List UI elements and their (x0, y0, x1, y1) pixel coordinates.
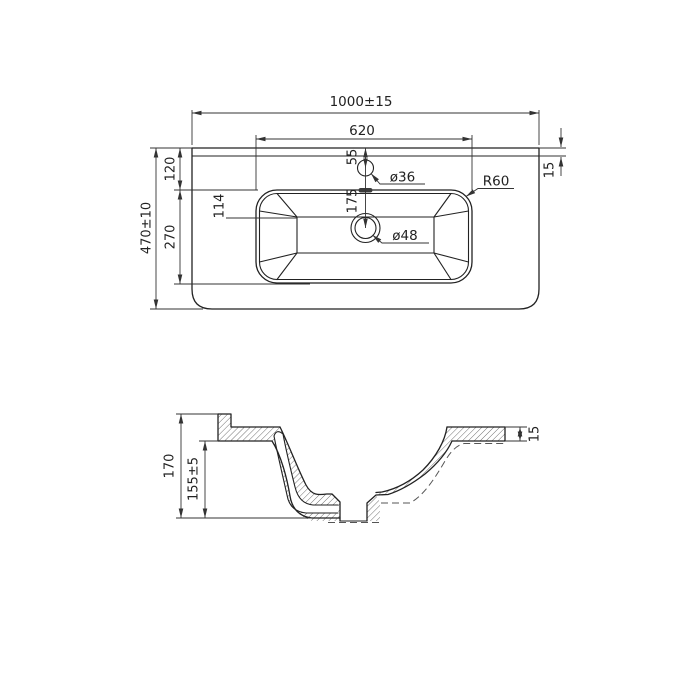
leader-corner-radius: R60 (466, 174, 514, 197)
dim-basin-floor-offset-label: 114 (213, 194, 228, 219)
dim-overall-height-label: 170 (163, 454, 178, 479)
dim-basin-depth: 270 (164, 190, 311, 284)
section-hatch-right-flange (447, 427, 505, 441)
dim-overall-depth-label: 470±10 (140, 202, 155, 254)
section-hatch-drain-wedge (367, 495, 380, 521)
dim-back-offset-label: 120 (164, 157, 179, 182)
dim-faucet-offset-label: 55 (346, 149, 361, 166)
leader-faucet-hole: ø36 (371, 170, 425, 186)
dim-faucet-to-drain-label: 175 (346, 189, 361, 214)
dim-back-offset: 120 (164, 148, 259, 190)
dim-rim-thickness: 15 (505, 426, 543, 443)
dim-rim-thickness-label: 15 (528, 426, 543, 443)
dim-basin-depth-label: 270 (164, 225, 179, 250)
dim-faucet-hole-label: ø36 (390, 170, 415, 186)
leader-drain-hole: ø48 (373, 228, 430, 244)
dim-drain-hole-label: ø48 (392, 228, 417, 244)
dim-back-ledge-label: 15 (543, 162, 558, 179)
section-view: 170 155±5 15 (163, 414, 543, 523)
section-hidden-lines (328, 444, 505, 523)
dim-faucet-offset: 55 (346, 148, 366, 168)
dim-back-ledge: 15 (539, 128, 566, 178)
dim-corner-radius-label: R60 (483, 174, 510, 190)
dim-bowl-height-label: 155±5 (187, 457, 202, 501)
basin-slope-lines (260, 194, 469, 280)
dim-faucet-to-drain: 175 (346, 168, 366, 228)
dim-basin-width-label: 620 (349, 123, 375, 139)
top-view-plan: 1000±15 620 470±10 120 270 (140, 94, 567, 309)
technical-drawing: 1000±15 620 470±10 120 270 (0, 0, 700, 700)
section-hatch-right-wall (376, 427, 452, 495)
dim-bowl-height: 155±5 (187, 441, 219, 518)
basin-outer-rim (256, 190, 472, 283)
dim-overall-width-label: 1000±15 (330, 94, 393, 110)
basin-inner-rim (260, 194, 469, 280)
